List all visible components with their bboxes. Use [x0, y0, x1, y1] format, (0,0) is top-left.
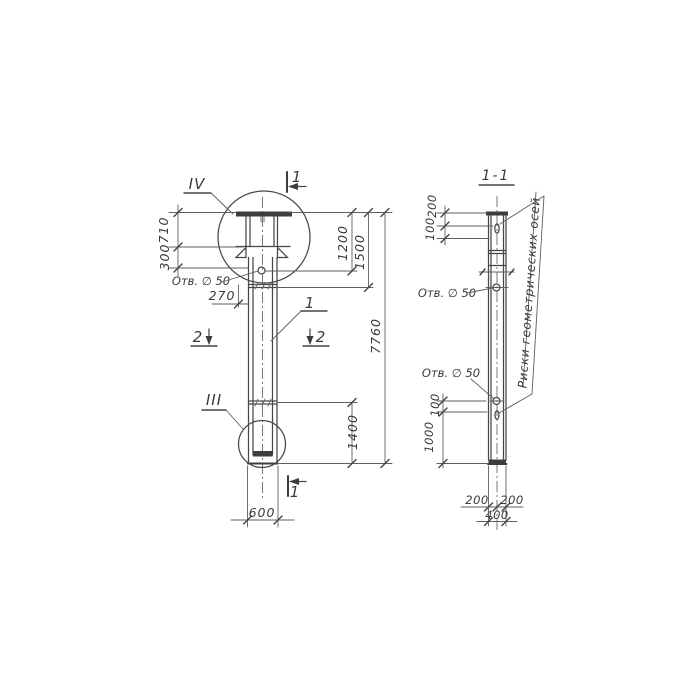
dim-top-to-mark: 200	[425, 194, 439, 217]
detail-circle-iv	[218, 191, 310, 283]
dim-top-to-hole: 1200	[335, 225, 350, 261]
dim-mark-to-axis: 100	[423, 217, 437, 240]
svg-text:600: 600	[249, 505, 276, 520]
svg-text:1: 1	[305, 294, 316, 312]
detail-iii-label: III	[206, 391, 222, 409]
dim-half-width-left: 200	[465, 493, 488, 507]
cap-plate	[236, 212, 292, 217]
section-mark-1-top: 1	[287, 168, 306, 192]
technical-drawing: IV III 1 1 2	[0, 0, 700, 700]
svg-text:2: 2	[193, 328, 204, 346]
hole-note-upper: Отв. ∅ 50	[418, 286, 493, 300]
svg-text:270: 270	[209, 288, 236, 303]
dim-lower-segment: 1400	[345, 414, 360, 450]
detail-iv-leader	[211, 193, 233, 214]
dim-cap-height: 710	[156, 217, 171, 244]
section-title: 1-1	[482, 168, 511, 184]
left-view: IV III 1 1 2	[156, 168, 392, 527]
dim-width-400: 400	[485, 508, 508, 522]
dim-top-to-joint: 1500	[352, 234, 367, 270]
drawing-sheet: IV III 1 1 2	[0, 0, 700, 700]
left-dimensions: 710 300	[156, 205, 248, 276]
cap-head-walls	[246, 217, 278, 247]
svg-text:Отв. ∅ 50: Отв. ∅ 50	[422, 366, 480, 380]
section-mark-2-left: 2	[191, 328, 217, 346]
dim-corbel: 300	[157, 244, 172, 271]
svg-text:1: 1	[292, 168, 303, 186]
svg-text:2: 2	[316, 328, 327, 346]
dim-half-width-right: 200	[500, 493, 523, 507]
detail-iv-label: IV	[189, 175, 206, 193]
hole-upper-left-view	[258, 267, 265, 274]
section-body	[479, 212, 514, 465]
right-view-width-dims: 200 200 400	[461, 466, 524, 526]
section-mark-2-right: 2	[303, 328, 329, 346]
svg-text:Отв. ∅ 50: Отв. ∅ 50	[172, 274, 230, 288]
bottom-plug	[253, 451, 273, 457]
dim-hole-to-mark: 100	[428, 393, 442, 416]
corbel	[236, 247, 290, 258]
detail-iii-leader	[226, 410, 243, 429]
right-view-section-1-1: 1-1	[418, 168, 544, 532]
right-view-bottom-dims: 100 1000	[422, 393, 487, 468]
dim-total-height: 7760	[368, 318, 383, 354]
right-view-top-dims: 200 100	[423, 194, 493, 245]
dim-mark-to-bottom: 1000	[422, 421, 436, 452]
dim-hole-offset: 270	[209, 285, 249, 308]
svg-text:1: 1	[290, 483, 301, 501]
right-dimensions: 1200 1500 1400 7760	[266, 209, 392, 468]
detail-circle-iii	[239, 421, 286, 468]
section-mark-1-bottom: 1	[288, 476, 306, 501]
